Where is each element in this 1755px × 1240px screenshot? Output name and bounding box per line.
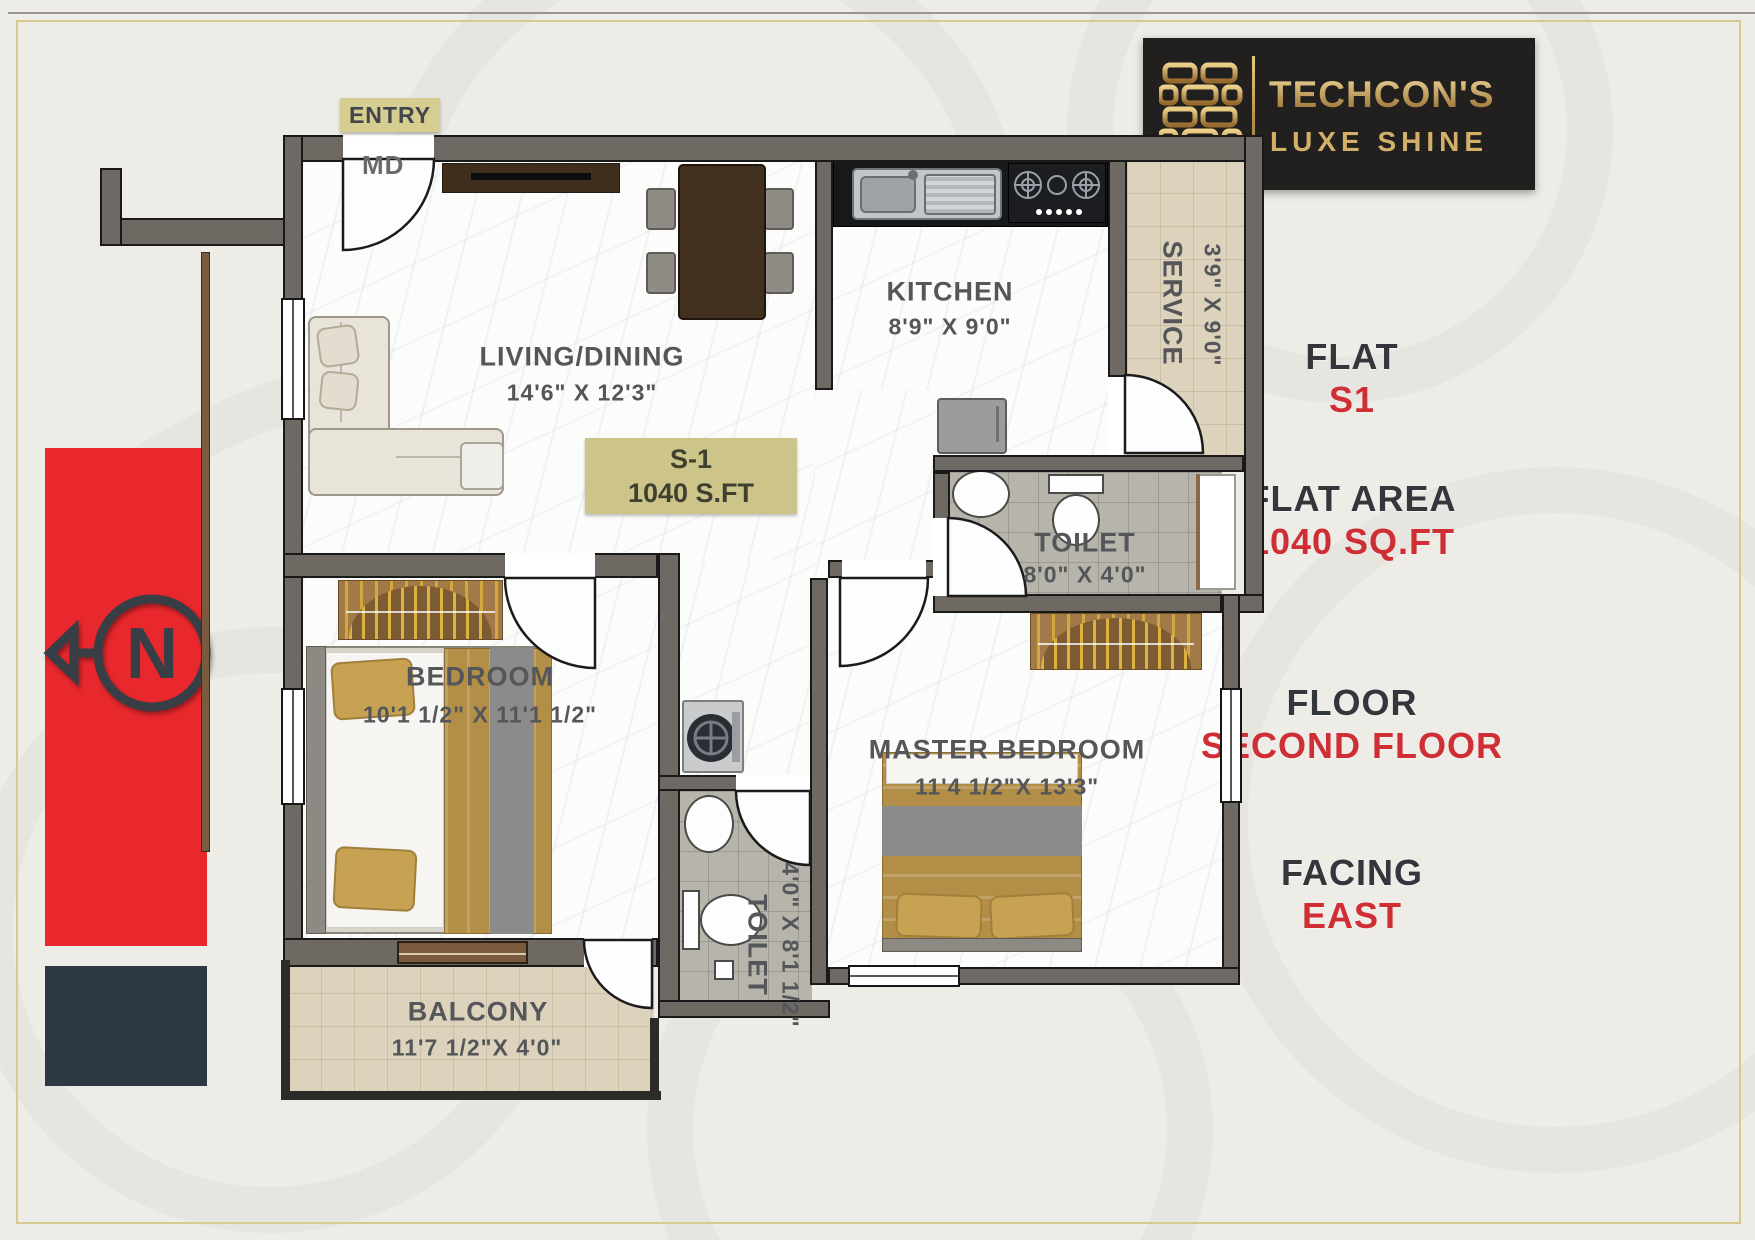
room-dims-kitchen: 8'9" X 9'0" xyxy=(888,314,1011,341)
room-label-toilet-common: TOILET xyxy=(1034,528,1136,559)
room-label-service: SERVICE xyxy=(1157,240,1188,365)
balcony-door-arc xyxy=(584,940,652,1008)
room-dims-living: 14'6" X 12'3" xyxy=(507,380,658,407)
room-label-balcony: BALCONY xyxy=(408,997,549,1028)
room-dims-balcony: 11'7 1/2"X 4'0" xyxy=(392,1035,563,1062)
toilet-door-arc xyxy=(948,518,1026,596)
bedroom-door-arc xyxy=(505,578,595,668)
floor-plan-poster: TECHCON'S LUXE SHINE FLAT S1 FLAT AREA 1… xyxy=(0,0,1755,1240)
room-dims-service: 3'9" X 9'0" xyxy=(1199,243,1226,366)
master-door-arc xyxy=(840,578,928,666)
room-label-master-bedroom: MASTER BEDROOM xyxy=(869,735,1146,766)
unit-badge: S-1 1040 S.FT xyxy=(585,438,797,514)
room-dims-bedroom: 10'1 1/2" X 11'1 1/2" xyxy=(363,702,597,729)
room-label-bedroom: BEDROOM xyxy=(406,662,554,693)
room-dims-toilet-common: 8'0" X 4'0" xyxy=(1023,562,1146,589)
unit-code: S-1 xyxy=(670,442,712,476)
toilet-door-arc xyxy=(736,791,810,865)
main-door-label: MD xyxy=(362,150,404,181)
room-label-living: LIVING/DINING xyxy=(479,342,684,373)
entry-badge: ENTRY xyxy=(340,98,440,132)
room-dims-toilet-attached: 4'0" X 8'1 1/2" xyxy=(777,862,804,1027)
service-door-arc xyxy=(1125,375,1203,453)
room-label-toilet-attached: TOILET xyxy=(742,894,773,996)
room-label-kitchen: KITCHEN xyxy=(887,277,1014,308)
unit-area: 1040 S.FT xyxy=(628,476,754,510)
room-dims-master-bedroom: 11'4 1/2"X 13'3" xyxy=(915,774,1099,801)
door-swings xyxy=(0,0,1755,1240)
